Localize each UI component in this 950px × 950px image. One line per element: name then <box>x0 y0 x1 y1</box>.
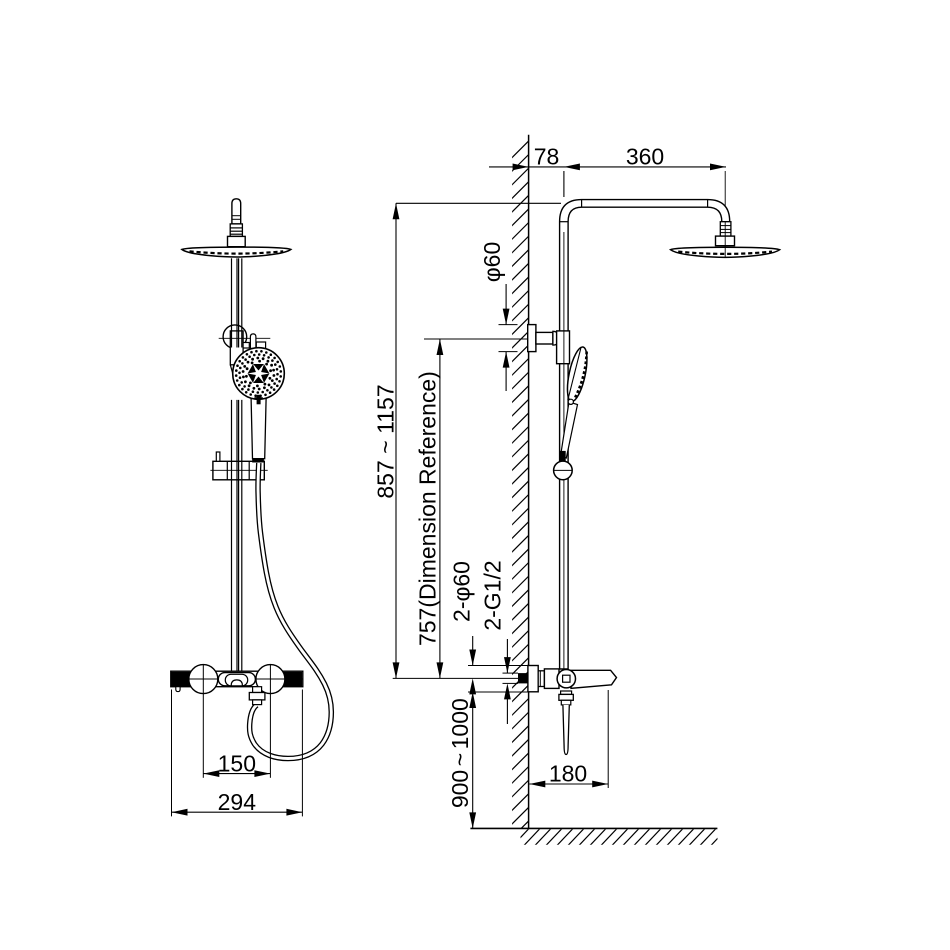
svg-text:757(Dimension Reference): 757(Dimension Reference) <box>415 371 441 646</box>
svg-text:2-G1/2: 2-G1/2 <box>480 560 506 630</box>
svg-text:360: 360 <box>626 144 664 170</box>
svg-text:2-φ60: 2-φ60 <box>449 561 475 622</box>
svg-text:78: 78 <box>534 144 560 170</box>
svg-text:900~1000: 900~1000 <box>447 698 473 808</box>
svg-text:857~1157: 857~1157 <box>373 384 399 498</box>
svg-text:φ60: φ60 <box>479 242 505 283</box>
svg-text:180: 180 <box>549 760 587 786</box>
svg-text:150: 150 <box>218 750 256 776</box>
svg-text:294: 294 <box>218 789 257 815</box>
